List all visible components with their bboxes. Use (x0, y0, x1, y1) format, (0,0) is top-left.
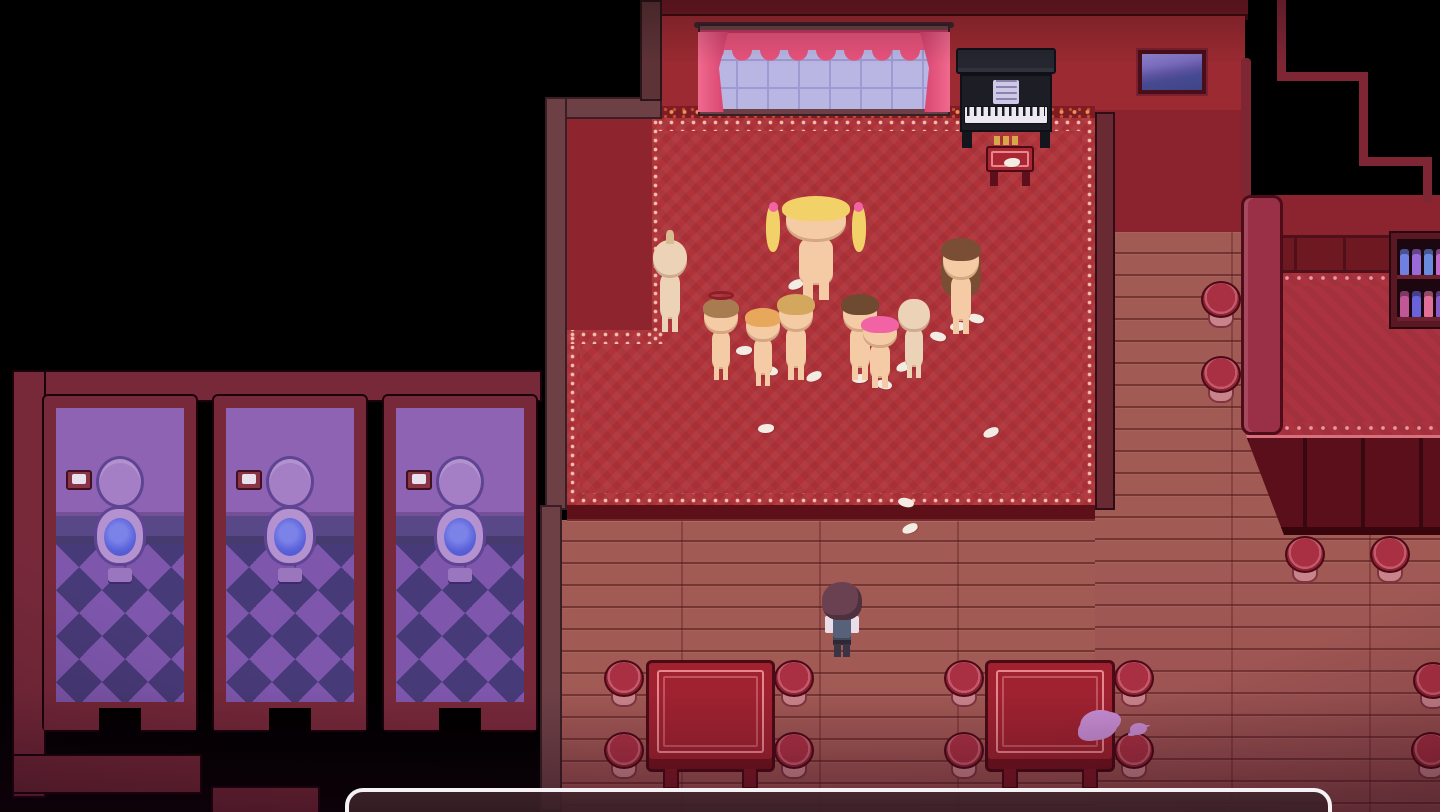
stool (1285, 536, 1325, 582)
piano-pedal (994, 136, 1000, 145)
sprite-body (754, 339, 772, 375)
wall-outline-segment (1359, 157, 1432, 166)
sprite-leg-right (916, 363, 921, 378)
piano-pedal (1012, 136, 1018, 145)
sprite-body (712, 331, 730, 369)
stool-seat (1201, 356, 1241, 393)
bottle (1424, 249, 1433, 275)
npc-halo-brown[interactable] (698, 298, 744, 380)
stool (944, 660, 984, 706)
table-leg-right (1082, 769, 1098, 789)
toilet-water (274, 518, 306, 556)
stall-interior (56, 408, 184, 708)
stall-interior (396, 408, 524, 708)
stall-interior (226, 408, 354, 708)
stool (774, 732, 814, 778)
divider-wall (1241, 195, 1283, 435)
npc-pale-elf[interactable] (646, 236, 694, 332)
border-left-lower (540, 505, 562, 812)
stool-seat (944, 660, 984, 697)
table-leg-left (1002, 769, 1018, 789)
sprite-body (905, 329, 923, 367)
wall-outline-segment (1277, 0, 1286, 80)
bottle (1400, 249, 1409, 275)
room-wall-right (1095, 110, 1245, 235)
toilet[interactable] (264, 456, 316, 586)
sprite-leg-left (788, 365, 794, 380)
ribbon-left (769, 202, 778, 211)
stool-seat (774, 660, 814, 697)
table (646, 660, 775, 772)
dialog-text (383, 806, 1283, 812)
curtain-valance (700, 30, 948, 50)
cabinet-shelf (1397, 239, 1440, 279)
bathroom-left-bar (14, 372, 44, 796)
sprite-leg-left (953, 317, 959, 334)
toilet-paper-roll (72, 474, 86, 484)
border-carpet-right (1095, 112, 1115, 510)
sprite-leg-right (723, 365, 729, 380)
bathroom-lower-wall-a (14, 756, 200, 792)
sprite-leg-right (882, 375, 888, 388)
bathroom-stall[interactable] (44, 396, 196, 730)
sprite-hair (777, 294, 815, 315)
piano-pedal (1003, 136, 1009, 145)
toilet-water (104, 518, 136, 556)
bottle (1436, 249, 1440, 275)
stool-seat (604, 660, 644, 697)
stool-seat (1285, 536, 1325, 573)
sprite-hair (941, 238, 981, 261)
stool (1370, 536, 1410, 582)
bottle (1436, 291, 1440, 317)
carpet-notch-lace-bottom (567, 330, 664, 344)
sprite-body (660, 274, 679, 318)
stool (774, 660, 814, 706)
stool-seat (1114, 660, 1154, 697)
toilet-paper-roll (242, 474, 256, 484)
stool (1201, 356, 1241, 402)
wall-outline-segment (1277, 72, 1368, 81)
npc-blonde-twintails[interactable] (774, 196, 858, 300)
sprite-head (653, 240, 688, 278)
piano-leg-left (962, 132, 972, 148)
stool-seat (1201, 281, 1241, 318)
sprite-body (799, 238, 833, 286)
wall-outline-segment (1359, 72, 1368, 165)
sprite-hair (841, 294, 879, 315)
bottle-cabinet[interactable] (1391, 233, 1440, 327)
game-scene (0, 0, 1440, 812)
npc-pale-bald[interactable] (892, 296, 936, 378)
sprite-leg-left (756, 372, 762, 386)
toilet-lid (96, 456, 144, 508)
player-leg-left (834, 644, 841, 657)
stool (604, 660, 644, 706)
sprite-leg-right (963, 317, 969, 334)
stall-doorway[interactable] (269, 708, 311, 742)
stool (944, 732, 984, 778)
toilet-lid (266, 456, 314, 508)
sprite-leg-left (714, 365, 720, 380)
toilet[interactable] (94, 456, 146, 586)
sprite-leg-left (872, 375, 878, 388)
sprite-hair-tuft (666, 230, 674, 243)
stall-doorway[interactable] (99, 708, 141, 742)
stool-seat (1411, 732, 1440, 769)
toilet-water (444, 518, 476, 556)
bottle (1400, 291, 1409, 317)
toilet[interactable] (434, 456, 486, 586)
bathroom-stall[interactable] (384, 396, 536, 730)
toilet-lid (436, 456, 484, 508)
dialog-box[interactable] (345, 788, 1332, 812)
bottle (1424, 291, 1433, 317)
steps-highlight (567, 519, 1095, 522)
sprite-head (898, 299, 930, 332)
divider-wall-upper (1241, 58, 1251, 198)
sprite-body (870, 345, 889, 378)
npc-long-brunette[interactable] (936, 238, 986, 334)
toilet-base (448, 568, 472, 582)
piano-keys (964, 106, 1048, 124)
bathroom-lower-wall-b (213, 788, 318, 812)
sprite-leg-right (819, 281, 829, 300)
toilet-base (278, 568, 302, 582)
stool (1114, 732, 1154, 778)
sprite-leg-right (798, 365, 804, 380)
sprite-body (786, 328, 805, 368)
border-top-vertical (640, 0, 662, 101)
bathroom-stall[interactable] (214, 396, 366, 730)
stool-seat (1413, 662, 1440, 699)
cabinet-shelf (1397, 281, 1440, 321)
stool (1114, 660, 1154, 706)
player-hair (822, 582, 862, 620)
sprite-leg-right (765, 372, 771, 386)
piano-sheet-music (993, 80, 1019, 104)
bottle (1412, 249, 1421, 275)
stool-seat (1114, 732, 1154, 769)
sprite-body (951, 276, 971, 320)
wall-outline-segment (1423, 157, 1432, 202)
sprite-leg-right (672, 315, 678, 332)
player-leg-right (843, 644, 850, 657)
table-leg-left (663, 769, 679, 789)
toilet-paper-roll (412, 474, 426, 484)
stool-seat (604, 732, 644, 769)
npc-sandy-hair[interactable] (772, 294, 820, 380)
player-character[interactable] (820, 582, 864, 658)
stool-seat (774, 732, 814, 769)
stool (1413, 662, 1440, 708)
ribbon-right (854, 202, 863, 211)
table-trim-inner (663, 676, 758, 747)
piano-leg-right (1040, 132, 1050, 148)
piano-lid (956, 48, 1056, 74)
sprite-leg-left (662, 315, 668, 332)
bench-leg-left (990, 172, 998, 186)
stool (604, 732, 644, 778)
sprite-leg-left (907, 363, 912, 378)
stool (1411, 732, 1440, 778)
bench-leg-right (1022, 172, 1030, 186)
table-leg-right (742, 769, 758, 789)
toilet-base (108, 568, 132, 582)
stool-seat (944, 732, 984, 769)
bottle (1412, 291, 1421, 317)
landscape-painting (1138, 50, 1206, 94)
carpet-notch (567, 118, 652, 330)
stool-seat (1370, 536, 1410, 573)
border-left-vertical (545, 97, 567, 510)
sprite-hair (782, 196, 849, 221)
piano[interactable] (956, 48, 1056, 152)
stool (1201, 281, 1241, 327)
stall-doorway[interactable] (439, 708, 481, 742)
sprite-hair (703, 298, 740, 318)
